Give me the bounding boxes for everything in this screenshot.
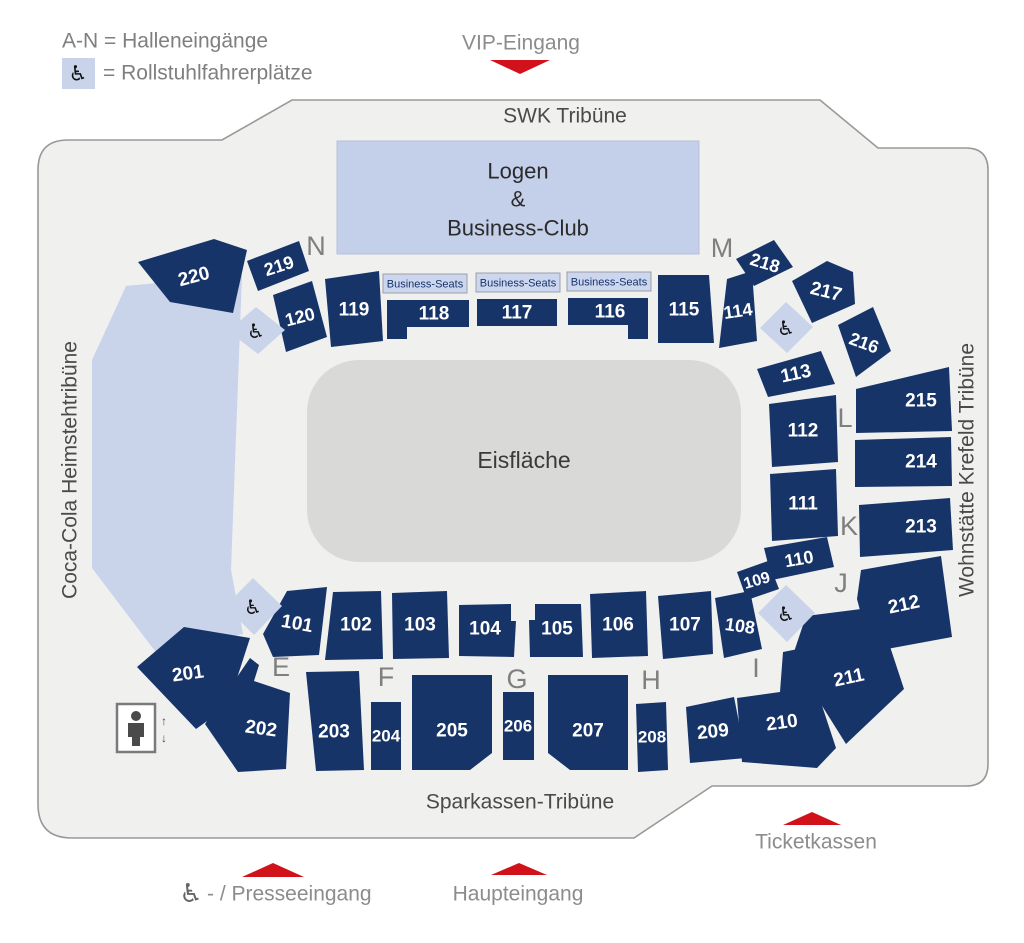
gate-letter-G: G bbox=[506, 664, 527, 694]
section-112-label: 112 bbox=[788, 421, 819, 442]
section-204-label: 204 bbox=[372, 727, 401, 746]
ticket-office-label: Ticketkassen bbox=[755, 831, 877, 854]
main-entrance-arrow-icon bbox=[491, 863, 547, 875]
gate-letter-N: N bbox=[306, 231, 326, 261]
section-210-label: 210 bbox=[765, 710, 799, 735]
elevator-arrow-down-icon: ↓ bbox=[161, 731, 167, 745]
logen-label-line-1: Logen bbox=[487, 159, 548, 184]
legend-wheelchair-label: = Rollstuhlfahrerplätze bbox=[103, 62, 313, 85]
section-205-label: 205 bbox=[436, 721, 468, 742]
section-107-label: 107 bbox=[669, 615, 701, 636]
business-seats-label-2: Business-Seats bbox=[480, 278, 557, 290]
section-202-label: 202 bbox=[244, 716, 278, 741]
section-104-label: 104 bbox=[469, 619, 501, 640]
legend-gates-label: A-N = Halleneingänge bbox=[62, 30, 268, 53]
business-seats-label-3: Business-Seats bbox=[571, 277, 648, 289]
wheelchair-icon: ♿ bbox=[247, 321, 265, 343]
section-105-label: 105 bbox=[541, 619, 573, 640]
section-118-label: 118 bbox=[419, 304, 450, 325]
wheelchair-icon: ♿ bbox=[179, 878, 202, 908]
ice-label: Eisfläche bbox=[477, 447, 570, 473]
section-102-label: 102 bbox=[340, 615, 372, 636]
section-106-label: 106 bbox=[602, 615, 634, 636]
tribune-label-bottom: Sparkassen-Tribüne bbox=[426, 791, 614, 814]
gate-letter-H: H bbox=[641, 665, 661, 695]
gate-letter-K: K bbox=[840, 511, 858, 541]
section-213-label: 213 bbox=[905, 517, 937, 538]
gate-letter-J: J bbox=[834, 568, 848, 598]
section-207-label: 207 bbox=[572, 721, 604, 742]
section-208-label: 208 bbox=[638, 728, 666, 747]
gate-letter-I: I bbox=[752, 653, 760, 683]
section-103-label: 103 bbox=[404, 615, 436, 636]
section-108-label: 108 bbox=[724, 614, 757, 638]
logen-label-line-2: & bbox=[511, 187, 526, 212]
section-214[interactable] bbox=[855, 437, 952, 487]
main-entrance-label: Haupteingang bbox=[453, 883, 584, 906]
wheelchair-icon: ♿ bbox=[244, 597, 262, 619]
elevator-arrow-up-icon: ↑ bbox=[161, 714, 167, 728]
section-116-label: 116 bbox=[595, 302, 626, 323]
gate-letter-M: M bbox=[711, 233, 734, 263]
section-114-label: 114 bbox=[722, 299, 754, 323]
gate-letter-F: F bbox=[378, 662, 395, 692]
tribune-label-top: SWK Tribüne bbox=[503, 105, 627, 128]
section-111-label: 111 bbox=[788, 494, 818, 515]
section-119-label: 119 bbox=[339, 300, 370, 321]
press-entrance-label: - / Presseeingang bbox=[207, 883, 372, 906]
section-203-label: 203 bbox=[318, 722, 350, 743]
section-215-label: 215 bbox=[905, 391, 937, 412]
vip-entrance-label: VIP-Eingang bbox=[462, 32, 580, 55]
arena-seating-map: Logen&Business-ClubEisflächeBusiness-Sea… bbox=[0, 0, 1024, 943]
section-117-label: 117 bbox=[502, 303, 533, 324]
wheelchair-icon: ♿ bbox=[777, 318, 795, 340]
gate-letter-L: L bbox=[837, 403, 852, 433]
press-entrance-arrow-icon bbox=[242, 863, 304, 877]
gate-letter-E: E bbox=[272, 652, 290, 682]
section-209-label: 209 bbox=[696, 720, 730, 744]
section-201-label: 201 bbox=[171, 661, 206, 686]
vip-entrance-arrow-icon bbox=[490, 60, 550, 74]
logen-label-line-3: Business-Club bbox=[447, 216, 589, 241]
section-115-label: 115 bbox=[669, 300, 700, 321]
section-214-label: 214 bbox=[905, 452, 937, 473]
business-seats-label-1: Business-Seats bbox=[387, 279, 464, 291]
wheelchair-icon: ♿ bbox=[777, 604, 795, 626]
tribune-label-left: Coca-Cola Heimstehtribüne bbox=[59, 341, 82, 599]
wheelchair-icon: ♿ bbox=[69, 63, 88, 86]
tribune-label-right: Wohnstätte Krefeld Tribüne bbox=[956, 343, 979, 597]
elevator-person-icon bbox=[131, 711, 141, 721]
seating-map-svg: Logen&Business-ClubEisflächeBusiness-Sea… bbox=[0, 0, 1024, 943]
ticket-office-arrow-icon bbox=[783, 812, 841, 825]
section-206-label: 206 bbox=[504, 717, 532, 736]
